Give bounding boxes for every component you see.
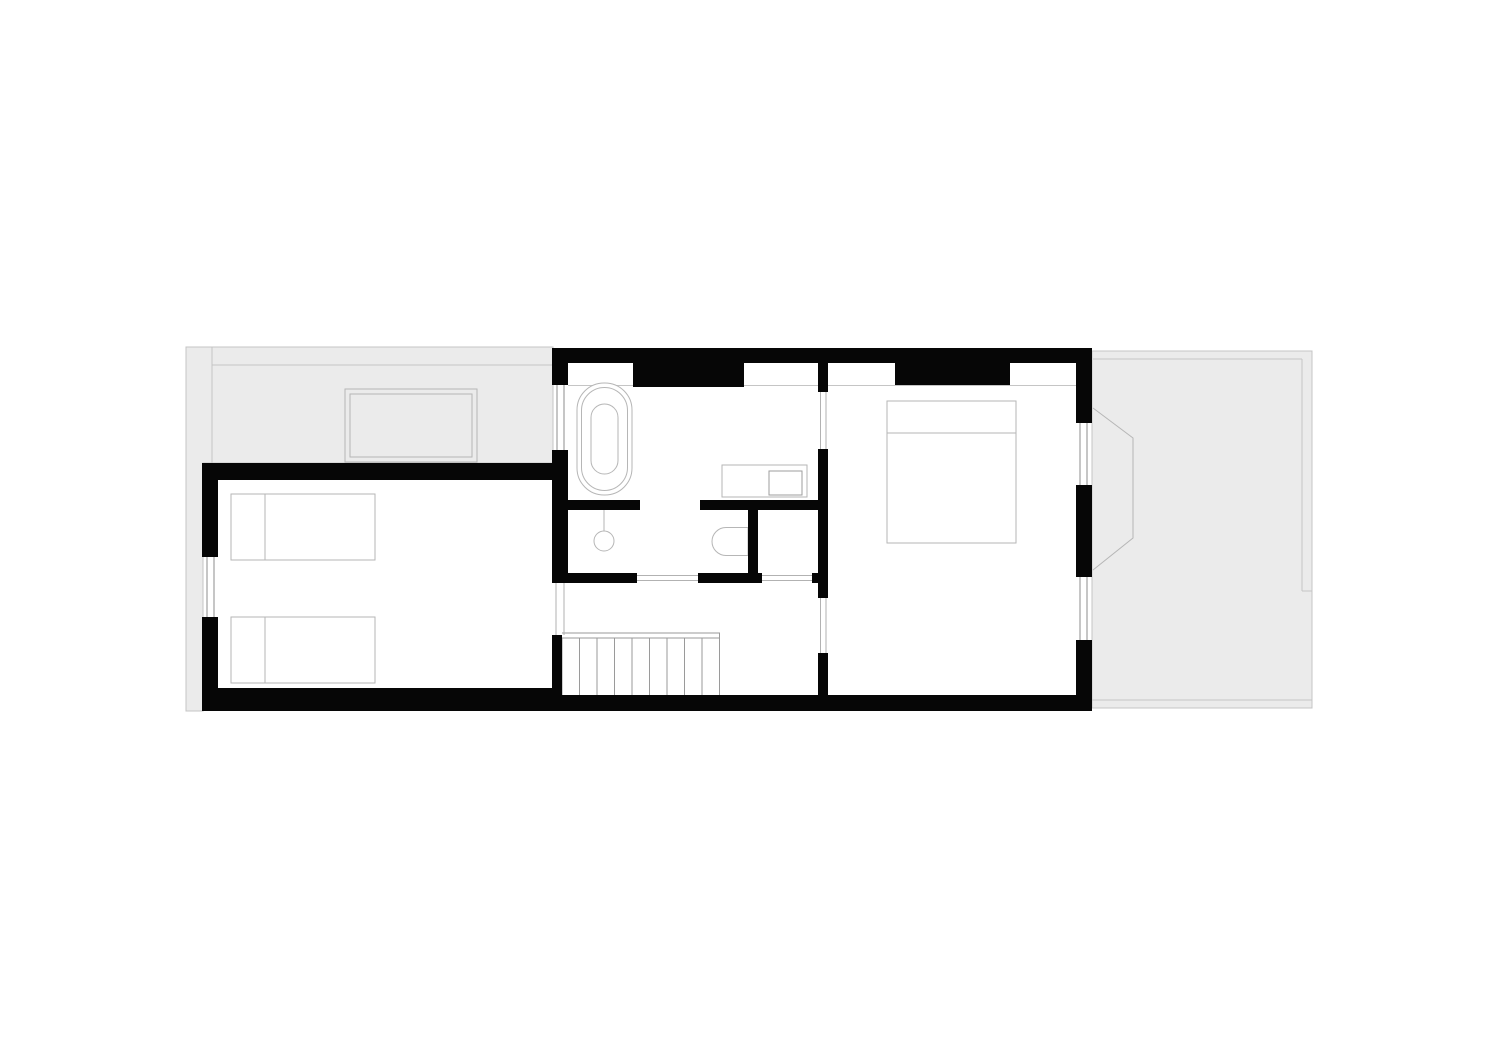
bathtub-outer-rim <box>577 383 632 495</box>
wall-east-segment-1 <box>1076 352 1092 423</box>
shower-head <box>594 531 614 551</box>
wall-bottom-left <box>202 688 553 711</box>
wall-toilet-right <box>748 500 758 583</box>
wall-divider-low <box>818 653 828 697</box>
wall-chimney-bath <box>633 348 744 387</box>
floor-plan-drawing <box>0 0 1500 1061</box>
wall-chimney-bedroom <box>895 348 1010 385</box>
vanity-counter <box>722 465 807 497</box>
bed-single-top <box>231 494 375 560</box>
wall-west-top <box>552 348 568 385</box>
wall-toilet-top <box>700 500 828 510</box>
wall-left-room-west-upper <box>202 463 218 557</box>
wall-east-segment-3 <box>1076 640 1092 711</box>
bed-single-bottom <box>231 617 375 683</box>
wall-east-segment-2 <box>1076 485 1092 577</box>
wall-bath-bottom-c <box>812 573 828 583</box>
toilet <box>712 528 748 556</box>
bed-double <box>887 401 1016 543</box>
wall-bath-bottom-a <box>552 573 637 583</box>
wall-shower-stub <box>568 500 640 510</box>
wall-west-stair <box>552 635 562 697</box>
wall-divider-top <box>818 348 828 392</box>
wall-bath-bottom-b <box>698 573 762 583</box>
floor-plan <box>0 0 1500 1061</box>
wall-bottom-main <box>552 695 1092 711</box>
roof-area-right <box>1092 351 1312 708</box>
wall-left-room-top <box>202 463 568 480</box>
